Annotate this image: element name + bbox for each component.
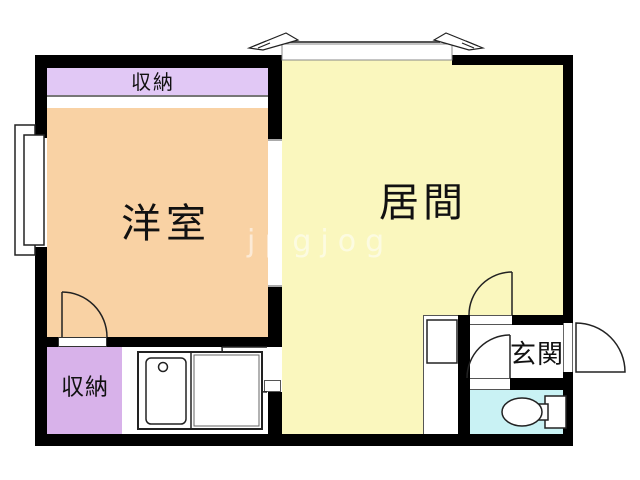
- western-room-label: 洋室: [121, 204, 211, 244]
- toilet-door-icon: [467, 335, 510, 378]
- western-room-door-icon: [62, 292, 107, 337]
- living-room-label: 居間: [379, 183, 467, 223]
- closet-bottom-label: 収納: [61, 377, 109, 400]
- bay-window-icon: [15, 125, 44, 255]
- kitchen-sink-icon: [138, 352, 262, 429]
- floor-plan: 洋室 居間 収納 収納 玄関 jpgjog: [0, 0, 640, 480]
- faucet-icon: [159, 363, 168, 372]
- front-door-icon: [576, 323, 625, 372]
- shoe-cabinet-icon: [427, 320, 457, 363]
- living-entrance-door-icon: [469, 272, 512, 315]
- watermark-text: jpgjog: [247, 224, 393, 259]
- entrance-label: 玄関: [510, 342, 564, 368]
- toilet-icon: [502, 396, 566, 428]
- sliding-window-top: [282, 42, 452, 60]
- closet-top-label: 収納: [131, 72, 175, 92]
